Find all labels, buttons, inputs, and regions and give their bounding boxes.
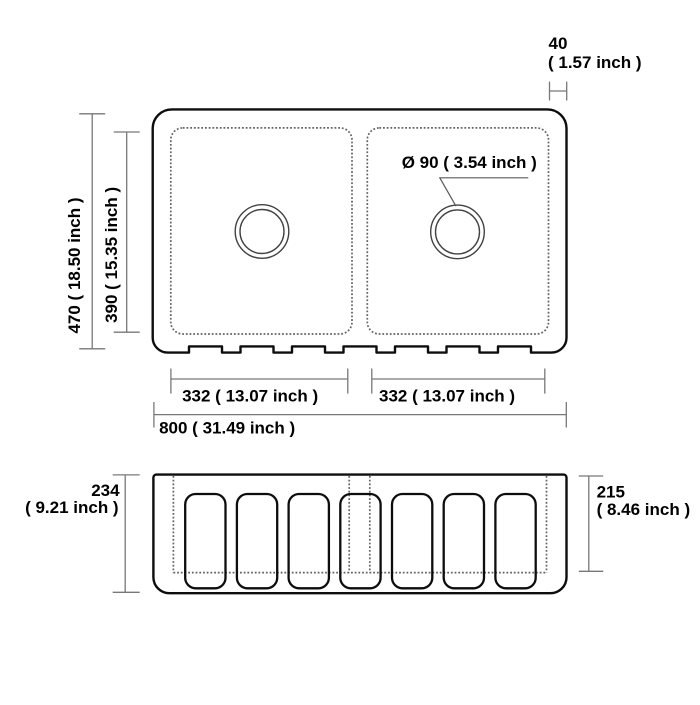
svg-text:215: 215: [597, 482, 625, 501]
svg-text:Ø 90 ( 3.54 inch ): Ø 90 ( 3.54 inch ): [402, 153, 537, 172]
svg-text:40: 40: [549, 34, 568, 53]
svg-text:470 ( 18.50 inch ): 470 ( 18.50 inch ): [65, 197, 84, 333]
svg-text:390 ( 15.35 inch ): 390 ( 15.35 inch ): [102, 187, 121, 323]
svg-text:( 8.46 inch ): ( 8.46 inch ): [597, 500, 691, 519]
svg-text:332 ( 13.07 inch ): 332 ( 13.07 inch ): [379, 386, 515, 405]
svg-text:234: 234: [91, 481, 120, 500]
svg-text:( 9.21 inch ): ( 9.21 inch ): [25, 498, 119, 517]
svg-text:800 ( 31.49 inch ): 800 ( 31.49 inch ): [159, 419, 295, 438]
svg-text:332 ( 13.07 inch ): 332 ( 13.07 inch ): [182, 386, 318, 405]
svg-text:( 1.57 inch ): ( 1.57 inch ): [548, 53, 642, 72]
